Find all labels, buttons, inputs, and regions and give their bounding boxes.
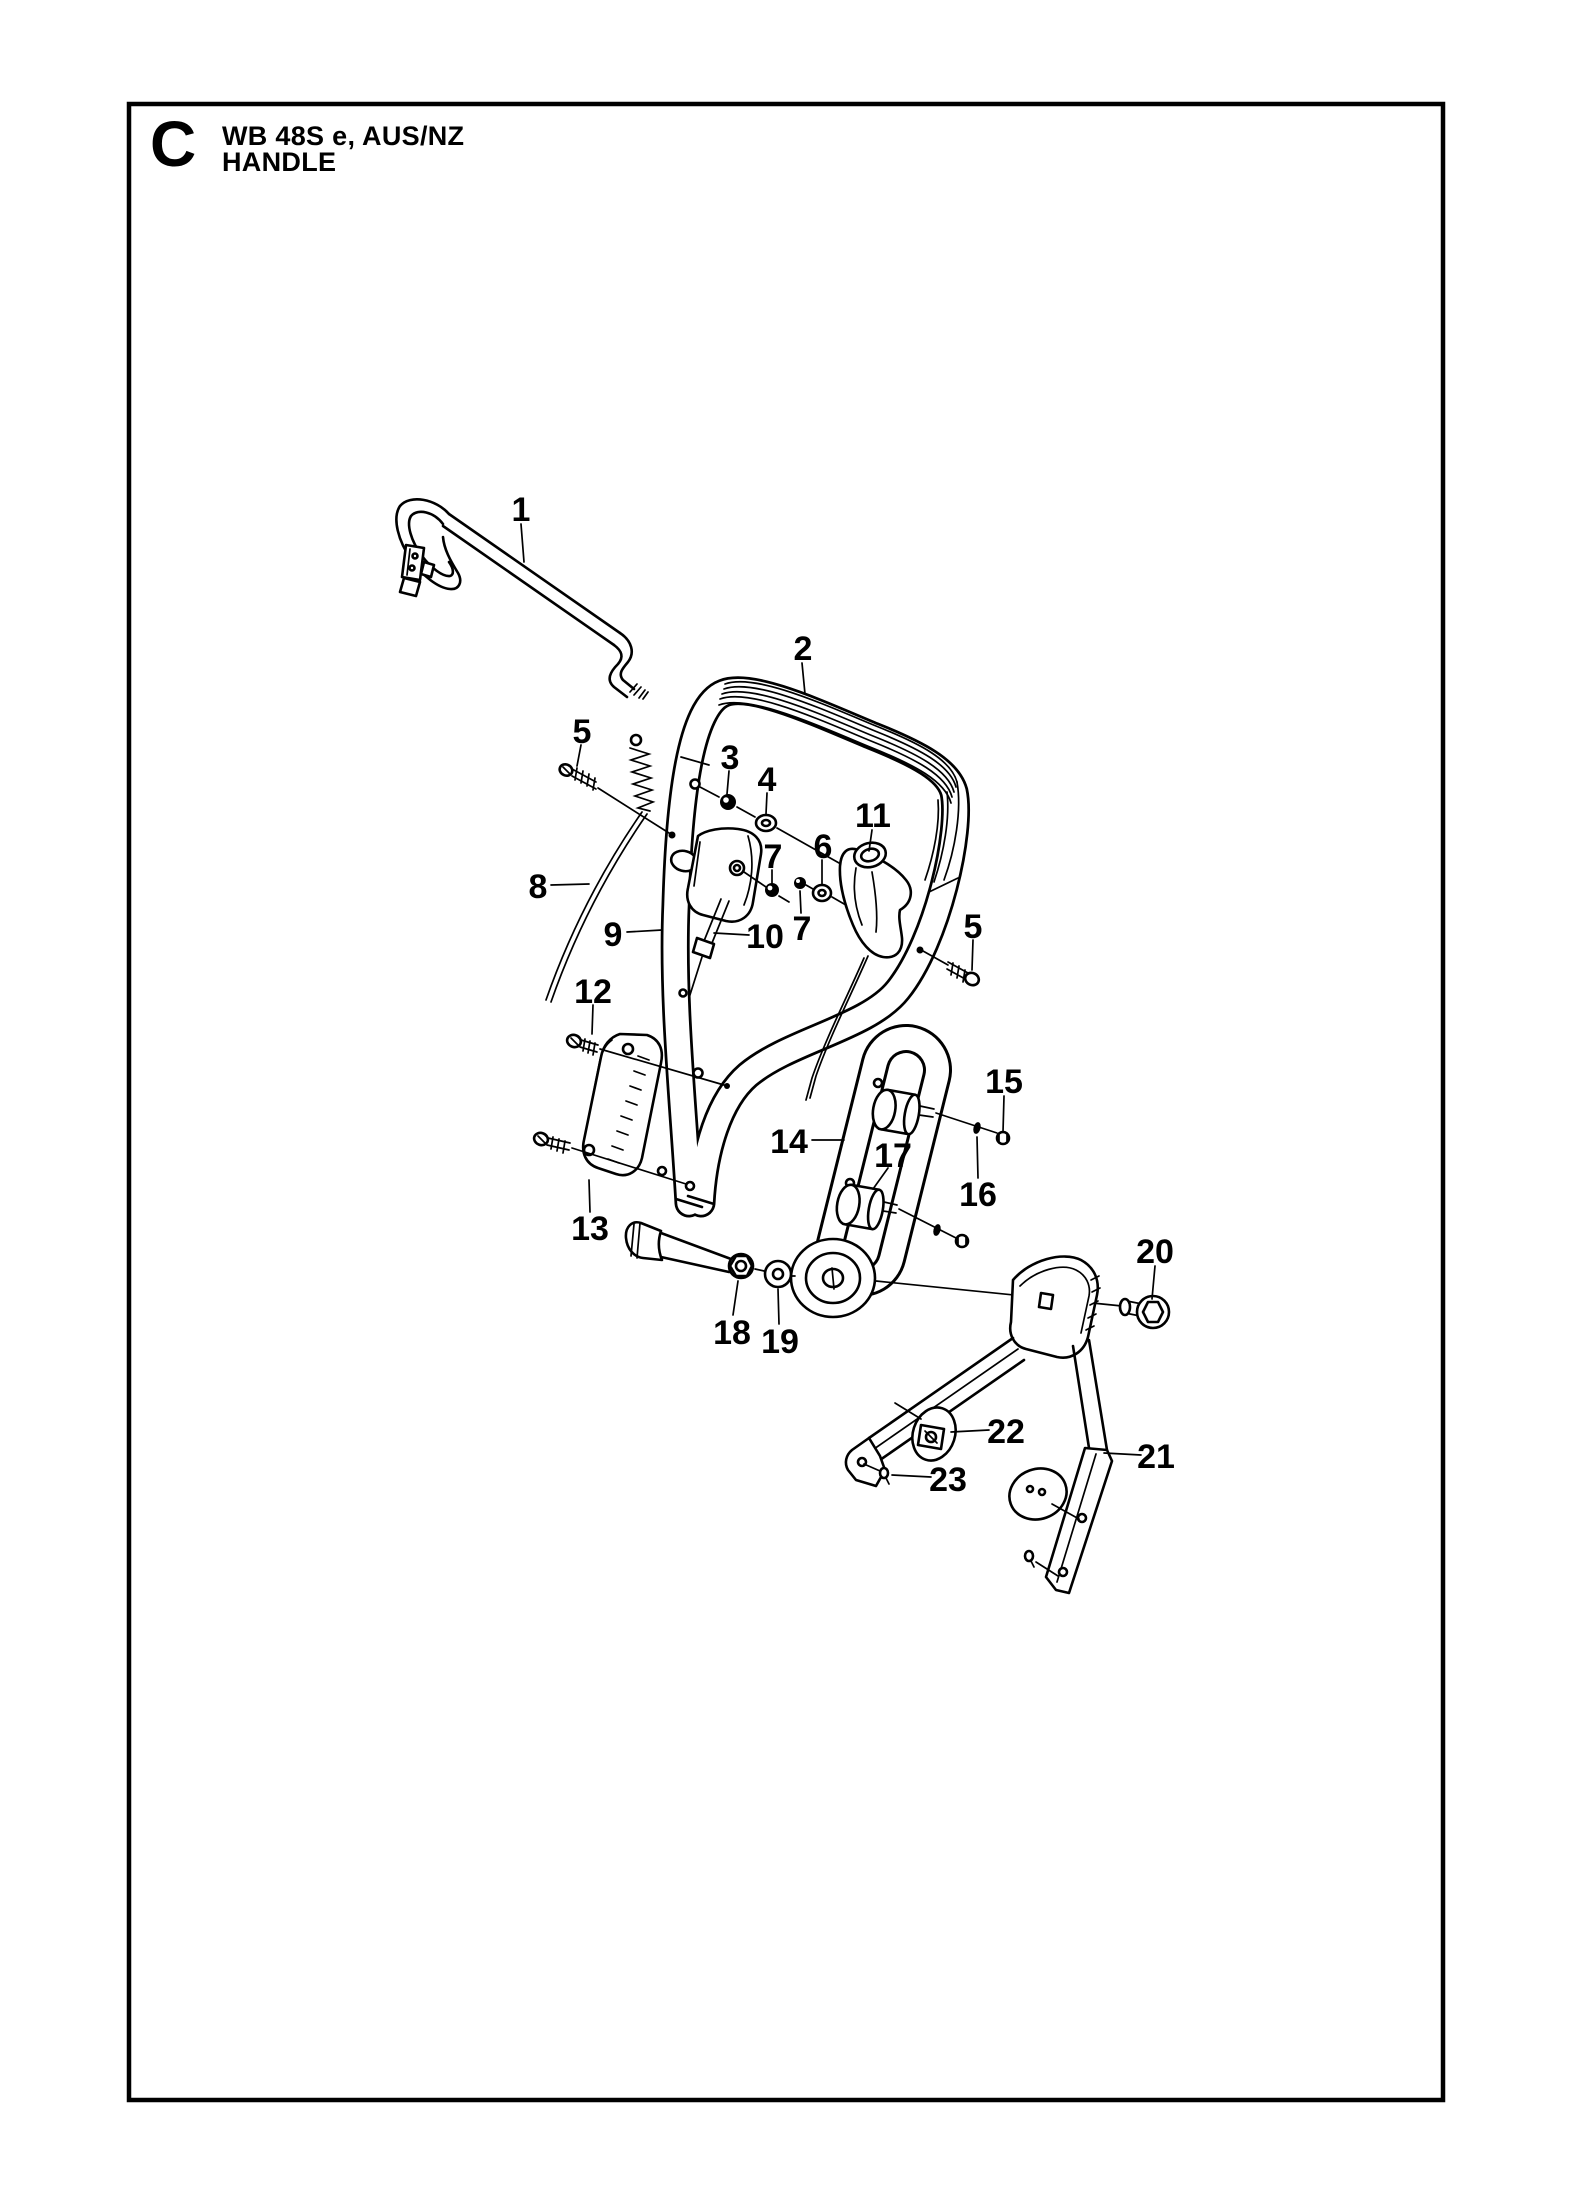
- pin-16: [972, 1121, 982, 1134]
- washer-4: [756, 815, 776, 831]
- part-18-knob: [626, 1222, 795, 1287]
- part-label-14: 14: [770, 1123, 808, 1161]
- part-label-19: 19: [761, 1323, 799, 1361]
- page-title-line1: WB 48S e, AUS/NZ: [222, 123, 464, 149]
- pin-16b: [932, 1223, 942, 1236]
- part-label-12: 12: [574, 973, 612, 1011]
- part-label-9: 9: [604, 916, 623, 954]
- pivot-disc: [791, 1239, 875, 1317]
- part-label-2: 2: [794, 630, 813, 668]
- page-title-line2: HANDLE: [222, 149, 464, 175]
- page-border: [129, 104, 1443, 2100]
- part-label-23: 23: [929, 1461, 967, 1499]
- part-13-bracket: [583, 1034, 666, 1175]
- exploded-diagram-svg: 123455677891011121314151617181920212223: [0, 0, 1573, 2204]
- part-label-8: 8: [529, 868, 548, 906]
- part-label-7: 7: [793, 910, 812, 948]
- page-title: WB 48S e, AUS/NZ HANDLE: [222, 123, 464, 175]
- part-label-17: 17: [874, 1137, 912, 1175]
- part-label-3: 3: [721, 739, 740, 777]
- part-label-11: 11: [855, 797, 891, 835]
- part-label-15: 15: [985, 1063, 1023, 1101]
- part-label-5: 5: [573, 713, 592, 751]
- section-letter: C: [150, 112, 196, 176]
- part-label-21: 21: [1137, 1438, 1175, 1476]
- nut-3: [720, 794, 736, 810]
- part-label-10: 10: [746, 918, 784, 956]
- screw-5-left: [558, 762, 676, 838]
- part-label-7: 7: [764, 838, 783, 876]
- part-label-4: 4: [758, 761, 777, 799]
- rivet-23: [880, 1468, 888, 1478]
- bolt-20: [1120, 1296, 1169, 1328]
- part-label-20: 20: [1136, 1233, 1174, 1271]
- washer-6: [813, 885, 831, 901]
- part-label-1: 1: [512, 491, 531, 529]
- parts-catalog-page: 123455677891011121314151617181920212223 …: [0, 0, 1573, 2204]
- washer-19: [765, 1261, 791, 1287]
- nut-7a: [765, 883, 779, 897]
- part-label-16: 16: [959, 1176, 997, 1214]
- nut-7b: [794, 877, 806, 889]
- part-label-13: 13: [571, 1210, 609, 1248]
- part-label-5: 5: [964, 908, 983, 946]
- part-label-22: 22: [987, 1413, 1025, 1451]
- part-label-6: 6: [814, 828, 833, 866]
- part-label-18: 18: [713, 1314, 751, 1352]
